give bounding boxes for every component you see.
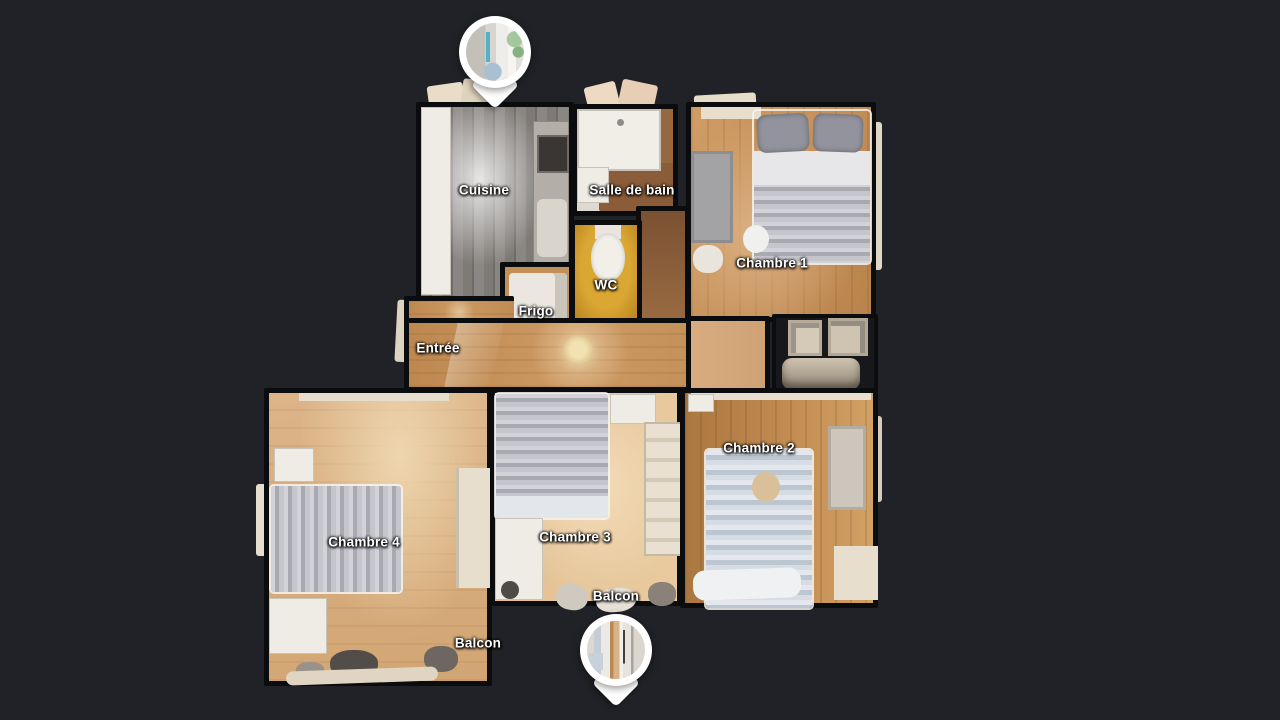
room-chambre-2[interactable] — [680, 388, 878, 608]
shelf — [701, 107, 761, 119]
pillow — [812, 113, 863, 153]
kitchen-counter — [421, 107, 451, 295]
wardrobe — [644, 422, 682, 556]
corridor-bedrooms[interactable] — [686, 316, 770, 394]
shower-drain — [617, 119, 624, 126]
room-label-frigo: Frigo — [519, 304, 554, 319]
sofa — [782, 358, 860, 390]
room-wc[interactable] — [570, 220, 642, 324]
clutter — [688, 394, 714, 412]
ceiling-light — [563, 336, 593, 366]
storage-box — [788, 320, 822, 356]
closet-area[interactable] — [772, 314, 878, 398]
room-label-salle-de-bain: Salle de bain — [589, 183, 674, 198]
room-label-balcon-a: Balcon — [455, 636, 501, 651]
blanket-spill — [693, 567, 802, 601]
bed — [496, 394, 608, 518]
pano-marker-top[interactable] — [459, 16, 531, 108]
storage-box — [828, 318, 868, 356]
kitchen-clutter — [537, 199, 567, 257]
room-label-chambre-1: Chambre 1 — [736, 256, 808, 271]
panorama-preview — [466, 23, 524, 81]
bed — [754, 111, 870, 263]
desk — [691, 151, 733, 243]
cabinet — [834, 546, 878, 600]
cushion — [752, 472, 780, 502]
shelf — [610, 394, 656, 424]
room-label-cuisine: Cuisine — [459, 183, 509, 198]
room-label-entree: Entrée — [416, 341, 459, 356]
room-label-chambre-4: Chambre 4 — [328, 535, 400, 550]
pano-marker-bottom[interactable] — [580, 614, 652, 706]
nightstand — [274, 448, 314, 482]
room-chambre-3[interactable] — [490, 388, 682, 606]
wardrobe — [456, 468, 492, 588]
room-label-chambre-2: Chambre 2 — [723, 441, 795, 456]
panorama-pin-icon — [459, 16, 531, 88]
scan-artifact — [648, 582, 676, 606]
desk — [828, 426, 866, 510]
wall-top — [299, 393, 449, 401]
pillow — [756, 113, 810, 154]
panorama-preview — [587, 621, 645, 679]
stool — [501, 581, 519, 599]
room-salle-de-bain[interactable] — [572, 104, 678, 216]
room-label-chambre-3: Chambre 3 — [539, 530, 611, 545]
corridor-bathroom[interactable] — [636, 206, 690, 326]
desk — [269, 598, 327, 654]
room-label-wc: WC — [595, 278, 618, 293]
panorama-pin-icon — [580, 614, 652, 686]
floorplan-viewer: Cuisine Salle de bain WC Frigo Entrée Ch… — [0, 0, 1280, 720]
kitchen-stove — [537, 135, 569, 173]
wall-top — [691, 393, 871, 400]
room-chambre-1[interactable] — [686, 102, 876, 322]
towel — [743, 225, 769, 253]
chair — [693, 245, 723, 273]
room-label-balcon-b: Balcon — [593, 589, 639, 604]
toilet — [591, 233, 625, 281]
